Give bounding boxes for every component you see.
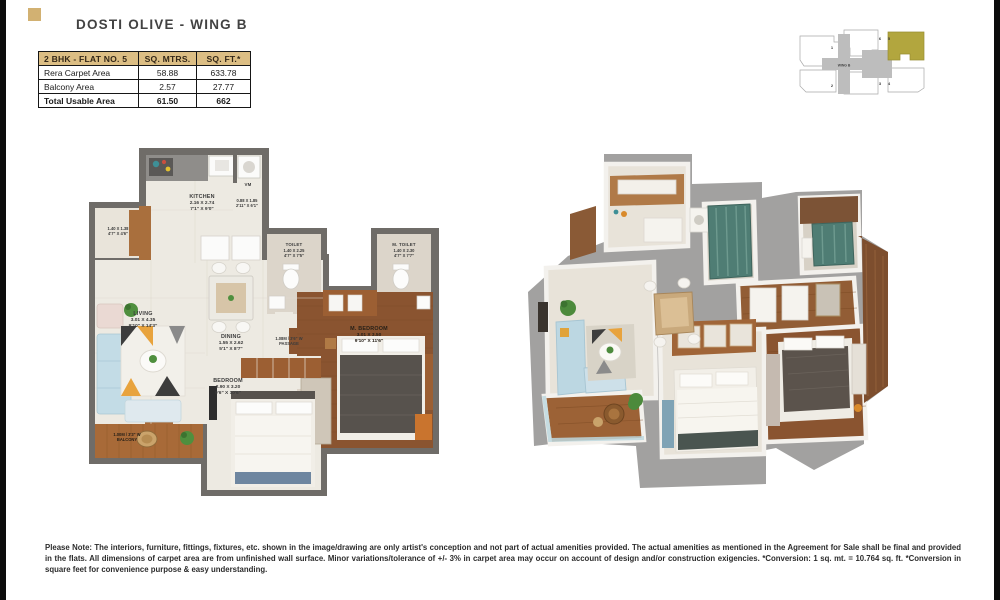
utility-dim-label: 0.88 X 1.85 2'11" X 6'1" <box>236 198 258 208</box>
passage-label: 1.08M / 3'6" W PASSAGE <box>275 336 302 346</box>
room-dim-ft: 9'10" X 14'3" <box>129 324 158 330</box>
row-mtrs: 2.57 <box>139 80 197 94</box>
table-row-total: Total Usable Area 61.50 662 <box>39 94 251 108</box>
flat-number-3: 3 <box>879 81 882 86</box>
table-row-rera-carpet: Rera Carpet Area 58.88 633.78 <box>39 66 251 80</box>
toilet-label: TOILET 1.40 X 2.25 4'7" X 7'5" <box>284 242 305 258</box>
floor-plan-2d: KITCHEN 2.16 X 2.74 7'1" X 9'0" VM 0.88 … <box>85 148 455 500</box>
utility-vm-label: VM <box>245 182 252 188</box>
room-name: BEDROOM <box>213 378 243 385</box>
table-header-row: 2 BHK - FLAT NO. 5 SQ. MTRS. SQ. FT.* <box>39 52 251 66</box>
col-sqft-header: SQ. FT.* <box>197 52 251 66</box>
wing-label: WING B <box>838 64 851 68</box>
page-title: DOSTI OLIVE - WING B <box>76 17 248 32</box>
row-label: Rera Carpet Area <box>39 66 139 80</box>
room-name: VM <box>245 182 252 188</box>
disclaimer-note: Please Note: The interiors, furniture, f… <box>45 543 961 575</box>
balcony-name: BALCONY <box>113 437 140 442</box>
row-mtrs: 58.88 <box>139 66 197 80</box>
right-edge-bar <box>994 0 1000 600</box>
balcony-label: 1.00M / 3'3" W BALCONY <box>113 432 140 442</box>
deck-label: 1.40 X 1.38 4'7" X 4'6" <box>108 226 129 236</box>
floor-plan-3d <box>512 146 932 510</box>
area-summary-table: 2 BHK - FLAT NO. 5 SQ. MTRS. SQ. FT.* Re… <box>38 51 251 108</box>
table-row-balcony: Balcony Area 2.57 27.77 <box>39 80 251 94</box>
room-dim-ft: 9'10" X 11'6" <box>350 339 388 345</box>
room-name: KITCHEN <box>189 194 214 201</box>
room-dim-ft: 4'7" X 7'5" <box>284 253 305 258</box>
row-ft: 27.77 <box>197 80 251 94</box>
m-toilet-label: M. TOILET 1.40 X 2.30 4'7" X 7'7" <box>392 242 415 258</box>
room-dim-ft: 5'1" X 8'7" <box>219 347 244 353</box>
row-label: Balcony Area <box>39 80 139 94</box>
room-name: M. BEDROOM <box>350 326 388 333</box>
row-ft: 633.78 <box>197 66 251 80</box>
room-name: DINING <box>219 334 244 341</box>
left-edge-bar <box>0 0 6 600</box>
m-bedroom-label: M. BEDROOM 3.01 X 3.50 9'10" X 11'6" <box>350 326 388 345</box>
room-dim-ft: 4'7" X 4'6" <box>108 231 129 236</box>
living-label: LIVING 3.01 X 4.35 9'10" X 14'3" <box>129 311 158 330</box>
room-name: M. TOILET <box>392 242 415 248</box>
col-flat-header: 2 BHK - FLAT NO. 5 <box>39 52 139 66</box>
room-dim-ft: 4'7" X 7'7" <box>392 253 415 258</box>
row-ft: 662 <box>197 94 251 108</box>
room-dim-ft: 2'11" X 6'1" <box>236 203 258 208</box>
room-dim-ft: 9'6" X 10'6" <box>213 391 243 397</box>
room-name: TOILET <box>284 242 305 248</box>
row-mtrs: 61.50 <box>139 94 197 108</box>
dining-label: DINING 1.55 X 2.62 5'1" X 8'7" <box>219 334 244 353</box>
passage-name: PASSAGE <box>275 341 302 346</box>
highlighted-flat-5 <box>888 32 924 60</box>
gold-corner-square <box>28 8 41 21</box>
flat-number-6: 6 <box>879 36 882 41</box>
col-sqmtrs-header: SQ. MTRS. <box>139 52 197 66</box>
room-name: LIVING <box>129 311 158 318</box>
kitchen-label: KITCHEN 2.16 X 2.74 7'1" X 9'0" <box>189 194 214 213</box>
room-dim-ft: 7'1" X 9'0" <box>189 207 214 213</box>
row-label: Total Usable Area <box>39 94 139 108</box>
bedroom-label: BEDROOM 2.90 X 3.20 9'6" X 10'6" <box>213 378 243 397</box>
building-key-plan: 1 2 3 4 5 6 WING B <box>792 24 932 104</box>
